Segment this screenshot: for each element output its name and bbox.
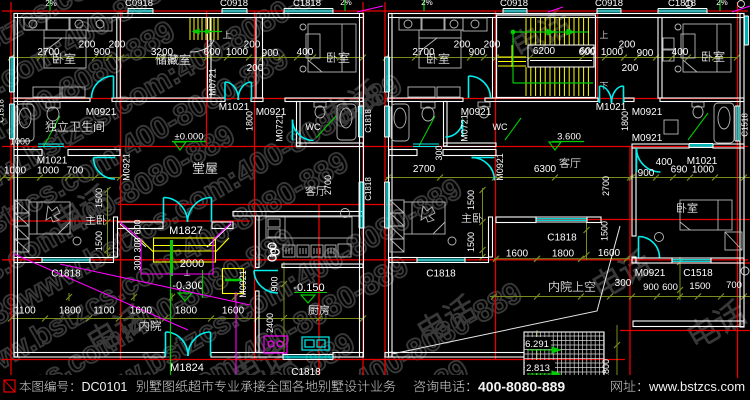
svg-text:M0721: M0721 [460, 114, 470, 142]
svg-text:2%: 2% [421, 0, 433, 7]
svg-text:C1518: C1518 [0, 99, 6, 123]
svg-text:900: 900 [262, 48, 279, 59]
svg-text:C0918: C0918 [220, 0, 248, 9]
svg-text:400: 400 [672, 47, 689, 58]
svg-text:1500: 1500 [94, 231, 104, 251]
svg-text:1000: 1000 [4, 166, 27, 177]
svg-text:1500: 1500 [600, 221, 610, 241]
svg-text:M0921: M0921 [495, 153, 505, 181]
svg-text:400: 400 [297, 47, 314, 58]
svg-text:C1518: C1518 [741, 113, 750, 137]
svg-text:1000: 1000 [692, 165, 715, 176]
svg-text:900: 900 [270, 276, 280, 291]
svg-text:6300: 6300 [534, 164, 557, 175]
svg-text:C1818: C1818 [364, 109, 373, 133]
svg-text:1000: 1000 [37, 166, 60, 177]
svg-text:DC0101: DC0101 [82, 380, 128, 394]
svg-text:M0921: M0921 [238, 270, 248, 298]
svg-text:C0918: C0918 [500, 0, 528, 9]
svg-text:2700: 2700 [37, 47, 60, 58]
svg-text:M1824: M1824 [170, 362, 204, 374]
svg-text:-0.300: -0.300 [172, 280, 203, 292]
svg-text:2%: 2% [340, 0, 352, 7]
svg-text:1800: 1800 [175, 306, 198, 317]
svg-text:700: 700 [67, 166, 84, 177]
svg-text:1000: 1000 [10, 137, 30, 147]
svg-text:WC: WC [493, 122, 508, 132]
svg-text:200: 200 [619, 40, 636, 51]
svg-text:1800: 1800 [245, 111, 255, 131]
svg-text:600: 600 [133, 219, 143, 234]
svg-text:2.813: 2.813 [526, 363, 550, 374]
svg-text:M0921: M0921 [632, 133, 663, 144]
svg-text:700: 700 [726, 280, 742, 291]
svg-text:M0921: M0921 [86, 107, 117, 118]
svg-text:2700: 2700 [601, 176, 611, 196]
svg-text:1600: 1600 [130, 306, 153, 317]
svg-text:2000: 2000 [180, 258, 204, 270]
svg-text:C1818: C1818 [364, 177, 373, 201]
svg-text:1800: 1800 [59, 306, 82, 317]
svg-text:600: 600 [204, 47, 221, 58]
svg-text:2700: 2700 [412, 47, 435, 58]
svg-text:200: 200 [484, 40, 501, 51]
svg-text:1800: 1800 [620, 111, 630, 131]
svg-text:1600: 1600 [222, 306, 245, 317]
svg-text:3.600: 3.600 [557, 132, 581, 143]
svg-text:1100: 1100 [14, 306, 36, 317]
svg-text:C0918: C0918 [125, 0, 153, 9]
svg-text:±0.000: ±0.000 [175, 132, 204, 143]
svg-text:1600: 1600 [598, 248, 621, 259]
svg-text:400-8080-889: 400-8080-889 [478, 379, 565, 395]
svg-text:M0721: M0721 [275, 114, 285, 142]
svg-text:M1827: M1827 [169, 225, 203, 237]
svg-text:200: 200 [244, 40, 261, 51]
svg-text:690: 690 [671, 165, 688, 176]
svg-text:2400: 2400 [265, 313, 275, 333]
svg-text:900: 900 [638, 168, 655, 179]
svg-text:1500: 1500 [689, 281, 710, 292]
svg-text:1500: 1500 [94, 188, 104, 208]
svg-text:3200: 3200 [151, 47, 174, 58]
svg-text:1500: 1500 [466, 190, 476, 210]
svg-text:900: 900 [637, 48, 654, 59]
svg-text:200: 200 [247, 63, 264, 74]
svg-text:1500: 1500 [466, 232, 476, 252]
svg-text:200: 200 [622, 63, 639, 74]
svg-text:C1818: C1818 [668, 0, 696, 9]
svg-text:2%: 2% [45, 0, 57, 8]
svg-text:2%: 2% [716, 0, 728, 7]
svg-text:C1818: C1818 [51, 269, 81, 280]
svg-text:C1818: C1818 [426, 269, 456, 280]
svg-text:M0921: M0921 [632, 107, 663, 118]
svg-text:300: 300 [133, 255, 143, 270]
svg-text:600: 600 [662, 282, 678, 293]
svg-text:900: 900 [643, 282, 659, 293]
svg-text:1100: 1100 [93, 306, 115, 317]
svg-text:WC: WC [306, 122, 321, 132]
svg-text:500: 500 [269, 244, 278, 258]
svg-text:1600: 1600 [506, 249, 529, 260]
svg-text:300: 300 [133, 237, 143, 252]
svg-text:300: 300 [434, 145, 444, 160]
svg-text:6200: 6200 [533, 46, 556, 57]
svg-text:2700: 2700 [413, 164, 436, 175]
svg-text:www.bstzcs.com: www.bstzcs.com [648, 379, 745, 394]
svg-text:M0921: M0921 [635, 268, 666, 279]
svg-text:M0921: M0921 [122, 153, 132, 181]
svg-text:2700: 2700 [323, 175, 333, 195]
svg-text:300: 300 [615, 278, 632, 289]
svg-text:6.291: 6.291 [525, 339, 549, 350]
svg-text:1800: 1800 [552, 249, 575, 260]
svg-text:C1818: C1818 [547, 233, 577, 244]
svg-text:C1818: C1818 [293, 0, 321, 9]
svg-text:C1518: C1518 [683, 268, 713, 279]
svg-text:200: 200 [109, 40, 126, 51]
svg-text:M0721: M0721 [208, 68, 218, 96]
svg-text:C0918: C0918 [595, 0, 623, 9]
svg-text:600: 600 [580, 46, 597, 57]
